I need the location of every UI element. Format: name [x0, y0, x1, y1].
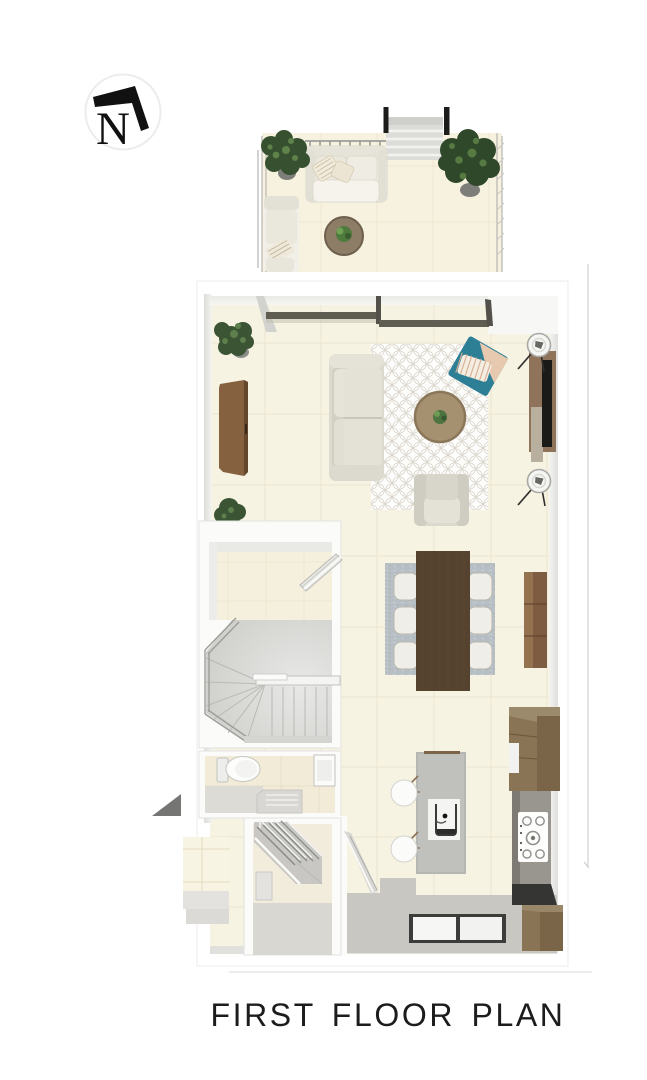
- svg-text:N: N: [96, 103, 130, 155]
- svg-text:FIRST FLOOR PLAN: FIRST FLOOR PLAN: [210, 997, 565, 1033]
